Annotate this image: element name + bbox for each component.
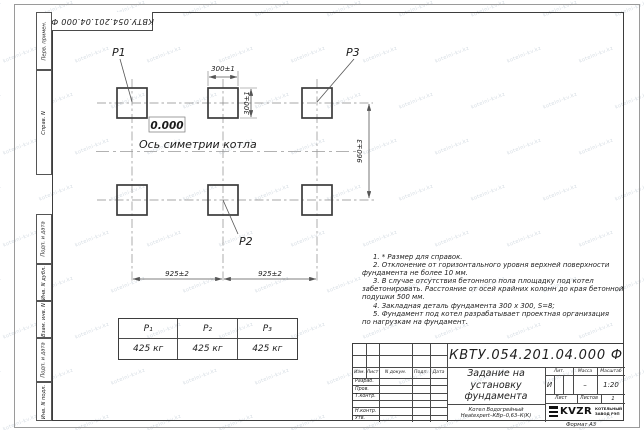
note-line: 4. Закладная деталь фундамента 300 х 300… <box>362 302 626 310</box>
tb-row-nkontr: Н.контр. <box>355 407 380 415</box>
drawing-sheet: kotelni-kv.kzkotelni-kv.kzkotelni-kv.kzk… <box>0 0 644 430</box>
company-logo: KVZR КОТЕЛЬНЫЙ ЗАВОД РЭП <box>545 403 625 421</box>
tb-lit-label: Лит. <box>545 367 573 375</box>
product-name-line: Heatexpert–КВр–0,63–К(К) <box>461 413 532 419</box>
tb-scale-label: Масштаб <box>597 367 625 375</box>
tb-lit-value: И <box>545 375 554 394</box>
centerlines <box>97 79 375 281</box>
note-line: забетонировать. Расстояние от осей крайн… <box>362 285 626 293</box>
dimension-lines <box>133 77 369 279</box>
doc-name-line: установку <box>470 380 521 392</box>
note-line: 5. Фундамент под котел разрабатывает про… <box>362 310 626 318</box>
doc-name-line: Задание на <box>467 368 525 380</box>
tb-row-razrab: Разраб. <box>355 378 380 385</box>
note-line: по нагрузкам на фундамент. <box>362 318 626 326</box>
tb-sheets-label: Листов <box>577 394 601 403</box>
note-line: 3. В случае отсутствия бетонного пола пл… <box>362 277 626 285</box>
loads-table-header-p1: P₁ <box>119 319 178 339</box>
leader-p3 <box>317 59 354 102</box>
dim-text-row-spacing: 960±3 <box>356 139 364 163</box>
title-block-product-name: Котел Водогрейный Heatexpert–КВр–0,63–К(… <box>447 404 545 422</box>
tb-row-prov: Пров. <box>355 385 380 393</box>
tb-sheet-label: Лист <box>545 394 577 403</box>
note-line: 2. Отклонение от горизонтального уровня … <box>362 261 626 269</box>
loads-table-value-p2: 425 кг <box>178 339 237 359</box>
note-line: 1. * Размер для справок. <box>362 253 626 261</box>
pad-label-p3: P3 <box>346 46 360 59</box>
dim-text-pad-height: 300±1 <box>243 91 251 115</box>
pad-label-p2: P2 <box>239 235 253 248</box>
note-line: фундамента не более 10 мм. <box>362 269 626 277</box>
tb-row-blank <box>355 400 380 407</box>
pad-label-p1: P1 <box>112 46 126 59</box>
elevation-mark-text: 0.000 <box>150 120 183 132</box>
kvzr-logo-subtitle: КОТЕЛЬНЫЙ ЗАВОД РЭП <box>595 407 622 416</box>
loads-table-header-p3: P₃ <box>238 319 297 339</box>
symmetry-axis-label: Ось симетрии котла <box>139 138 257 151</box>
kvzr-logo-text: KVZR <box>560 406 592 417</box>
tb-scale-value: 1:20 <box>597 375 625 394</box>
tb-header-ndokum: N докум. <box>379 367 412 378</box>
tb-sheets-value: 1 <box>601 394 625 403</box>
doc-name-line: фундамента <box>465 391 528 403</box>
dim-text-col-left: 925±2 <box>165 270 189 278</box>
note-line: подушки 500 мм. <box>362 293 626 301</box>
dim-text-col-right: 925±2 <box>258 270 282 278</box>
tb-mass-label: Масса <box>573 367 597 375</box>
title-block-document-name: Задание на установку фундамента <box>447 367 545 404</box>
notes-block: 1. * Размер для справок. 2. Отклонение о… <box>362 253 626 326</box>
tb-header-izm: Изм. <box>353 367 366 378</box>
leader-p2 <box>223 200 238 234</box>
format-label: Формат А3 <box>566 422 596 428</box>
grid-line <box>353 355 447 356</box>
title-block-doc-number: КВТУ.054.201.04.000 Ф <box>447 344 625 367</box>
loads-table-value-p1: 425 кг <box>119 339 178 359</box>
grid-line <box>554 375 555 394</box>
logo-sub-line: ЗАВОД РЭП <box>595 412 622 416</box>
leader-p1 <box>120 59 132 102</box>
tb-header-list: Лист <box>366 367 379 378</box>
dim-text-pad-width: 300±1 <box>211 65 235 73</box>
tb-row-utv: Утв. <box>355 415 380 422</box>
tb-row-tkontr: Т.контр. <box>355 393 380 400</box>
tb-header-podp: Подп. <box>412 367 430 378</box>
tb-header-data: Дата <box>430 367 447 378</box>
loads-table: P₁ P₂ P₃ 425 кг 425 кг 425 кг <box>118 318 298 360</box>
kvzr-logo-icon <box>549 406 558 417</box>
grid-line <box>563 375 564 394</box>
tb-mass-value: – <box>573 375 597 394</box>
loads-table-value-p3: 425 кг <box>238 339 297 359</box>
title-block: КВТУ.054.201.04.000 Ф Задание на установ… <box>352 343 624 421</box>
loads-table-header-p2: P₂ <box>178 319 237 339</box>
